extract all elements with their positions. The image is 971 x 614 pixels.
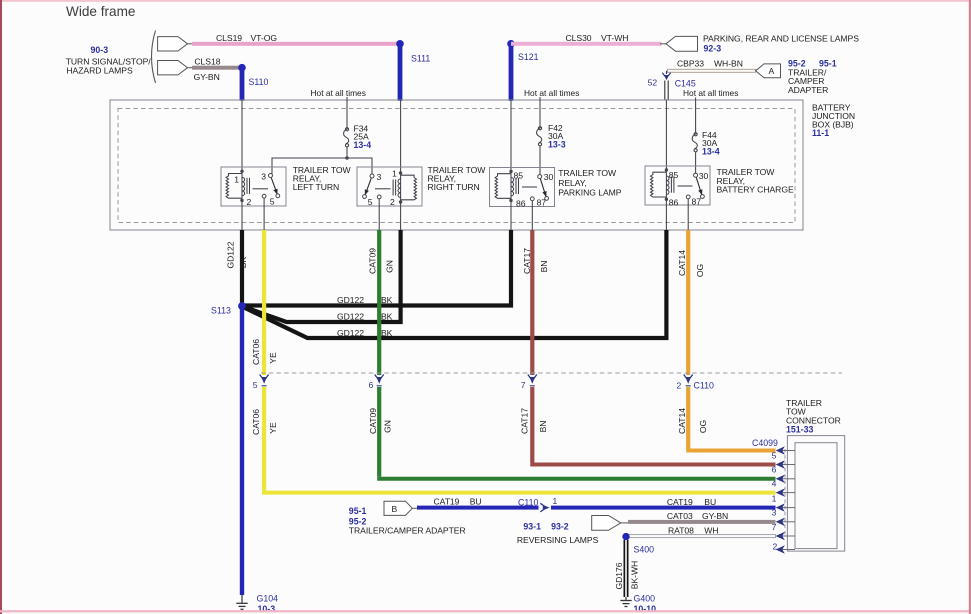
svg-text:S121: S121 xyxy=(518,52,539,62)
svg-text:CLS30: CLS30 xyxy=(566,33,592,43)
svg-text:VT-WH: VT-WH xyxy=(601,33,628,43)
svg-text:1: 1 xyxy=(234,174,239,184)
svg-text:2: 2 xyxy=(677,381,682,391)
svg-text:RIGHT TURN: RIGHT TURN xyxy=(428,182,480,192)
svg-text:TRAILER TOW: TRAILER TOW xyxy=(558,168,617,178)
svg-text:86: 86 xyxy=(516,198,526,208)
svg-text:WH-BN: WH-BN xyxy=(714,59,743,69)
svg-text:1: 1 xyxy=(553,496,558,506)
svg-text:B: B xyxy=(392,504,398,514)
svg-text:3: 3 xyxy=(377,172,382,182)
svg-text:GN: GN xyxy=(385,260,395,273)
svg-text:13-4: 13-4 xyxy=(702,146,720,156)
svg-text:30: 30 xyxy=(699,171,709,181)
svg-text:G400: G400 xyxy=(634,594,656,604)
svg-text:BK: BK xyxy=(381,295,393,305)
svg-text:BK: BK xyxy=(381,312,393,322)
svg-text:BU: BU xyxy=(704,497,716,507)
svg-text:BK-WH: BK-WH xyxy=(630,561,640,589)
svg-text:CAT14: CAT14 xyxy=(677,250,687,276)
svg-text:CAT06: CAT06 xyxy=(251,339,261,365)
svg-text:GY-BN: GY-BN xyxy=(702,511,728,521)
svg-text:151-33: 151-33 xyxy=(786,424,813,434)
svg-text:Hot at all times: Hot at all times xyxy=(311,88,366,98)
svg-text:BN: BN xyxy=(538,421,548,433)
svg-text:4: 4 xyxy=(772,478,777,488)
svg-text:CAT19: CAT19 xyxy=(667,497,693,507)
svg-text:LEFT TURN: LEFT TURN xyxy=(293,182,340,192)
svg-text:CLS19: CLS19 xyxy=(216,33,242,43)
svg-text:RELAY,: RELAY, xyxy=(558,178,587,188)
svg-text:93-1: 93-1 xyxy=(523,522,541,532)
svg-text:G104: G104 xyxy=(257,594,279,604)
svg-text:C145: C145 xyxy=(675,79,696,89)
svg-text:87: 87 xyxy=(692,196,702,206)
svg-text:C110: C110 xyxy=(518,497,538,507)
svg-text:87: 87 xyxy=(537,197,547,207)
svg-text:HAZARD LAMPS: HAZARD LAMPS xyxy=(66,66,133,76)
svg-text:YE: YE xyxy=(268,422,278,434)
svg-text:CAT09: CAT09 xyxy=(368,248,378,274)
svg-text:CAT09: CAT09 xyxy=(368,408,378,434)
svg-text:GD122: GD122 xyxy=(337,295,364,305)
svg-text:Hot at all times: Hot at all times xyxy=(524,88,579,98)
svg-text:CAT17: CAT17 xyxy=(520,408,530,434)
svg-text:2: 2 xyxy=(247,197,252,207)
svg-text:7: 7 xyxy=(772,522,777,532)
svg-text:GN: GN xyxy=(383,420,393,433)
svg-text:Wide frame: Wide frame xyxy=(66,4,136,19)
svg-text:TRAILER/CAMPER ADAPTER: TRAILER/CAMPER ADAPTER xyxy=(349,525,466,535)
svg-text:PARKING LAMP: PARKING LAMP xyxy=(558,188,622,198)
svg-text:5: 5 xyxy=(253,380,258,390)
svg-text:GD122: GD122 xyxy=(337,312,364,322)
svg-text:Hot at all times: Hot at all times xyxy=(683,88,738,98)
svg-text:BK: BK xyxy=(238,257,248,269)
svg-text:VT-OG: VT-OG xyxy=(251,33,278,43)
svg-text:CBP33: CBP33 xyxy=(677,59,704,69)
svg-text:95-1: 95-1 xyxy=(349,506,367,516)
svg-text:2: 2 xyxy=(390,197,395,207)
svg-text:13-3: 13-3 xyxy=(548,139,566,149)
svg-text:93-2: 93-2 xyxy=(551,522,569,532)
svg-text:BK: BK xyxy=(381,328,393,338)
svg-text:5: 5 xyxy=(368,197,373,207)
svg-text:52: 52 xyxy=(648,78,658,88)
svg-text:CAT19: CAT19 xyxy=(434,496,460,506)
svg-text:A: A xyxy=(769,66,775,76)
svg-text:5: 5 xyxy=(270,197,275,207)
svg-text:S111: S111 xyxy=(411,54,430,64)
svg-text:S400: S400 xyxy=(634,545,655,555)
svg-text:3: 3 xyxy=(261,171,266,181)
svg-text:GD122: GD122 xyxy=(226,241,236,268)
svg-text:GY-BN: GY-BN xyxy=(194,72,220,82)
svg-text:90-3: 90-3 xyxy=(91,45,109,55)
svg-text:1: 1 xyxy=(392,169,397,179)
svg-text:OG: OG xyxy=(698,420,708,434)
svg-text:7: 7 xyxy=(521,380,526,390)
svg-text:11-1: 11-1 xyxy=(812,128,829,138)
svg-text:GD176: GD176 xyxy=(614,562,624,589)
svg-text:CAT06: CAT06 xyxy=(251,409,261,435)
svg-text:PARKING, REAR AND LICENSE LAMP: PARKING, REAR AND LICENSE LAMPS xyxy=(703,34,859,44)
svg-text:1: 1 xyxy=(772,493,777,503)
svg-text:85: 85 xyxy=(514,170,524,180)
svg-text:13-4: 13-4 xyxy=(354,140,372,150)
svg-text:85: 85 xyxy=(669,170,679,180)
svg-text:BATTERY CHARGE: BATTERY CHARGE xyxy=(717,184,794,194)
svg-text:3: 3 xyxy=(772,508,777,518)
svg-text:REVERSING LAMPS: REVERSING LAMPS xyxy=(517,535,599,545)
svg-text:86: 86 xyxy=(669,198,679,208)
svg-text:92-3: 92-3 xyxy=(704,43,722,53)
svg-text:BN: BN xyxy=(539,261,549,273)
svg-text:6: 6 xyxy=(369,380,374,390)
svg-text:C4099: C4099 xyxy=(752,438,778,448)
svg-text:GD122: GD122 xyxy=(337,328,364,338)
svg-text:CAT17: CAT17 xyxy=(522,248,532,274)
svg-text:CLS18: CLS18 xyxy=(194,56,220,66)
svg-text:C110: C110 xyxy=(694,381,714,391)
svg-text:S110: S110 xyxy=(249,77,269,87)
svg-text:YE: YE xyxy=(268,352,278,364)
svg-text:BU: BU xyxy=(470,496,482,506)
svg-text:CAT14: CAT14 xyxy=(677,408,687,434)
svg-text:ADAPTER: ADAPTER xyxy=(788,85,828,95)
svg-text:5: 5 xyxy=(772,450,777,460)
svg-text:6: 6 xyxy=(772,465,777,475)
svg-text:OG: OG xyxy=(695,264,705,278)
svg-text:30: 30 xyxy=(544,172,554,182)
svg-text:CAT03: CAT03 xyxy=(667,511,693,521)
svg-text:2: 2 xyxy=(773,542,778,552)
svg-text:RAT08: RAT08 xyxy=(668,526,694,536)
svg-text:S113: S113 xyxy=(211,306,231,316)
svg-text:WH: WH xyxy=(704,526,718,536)
